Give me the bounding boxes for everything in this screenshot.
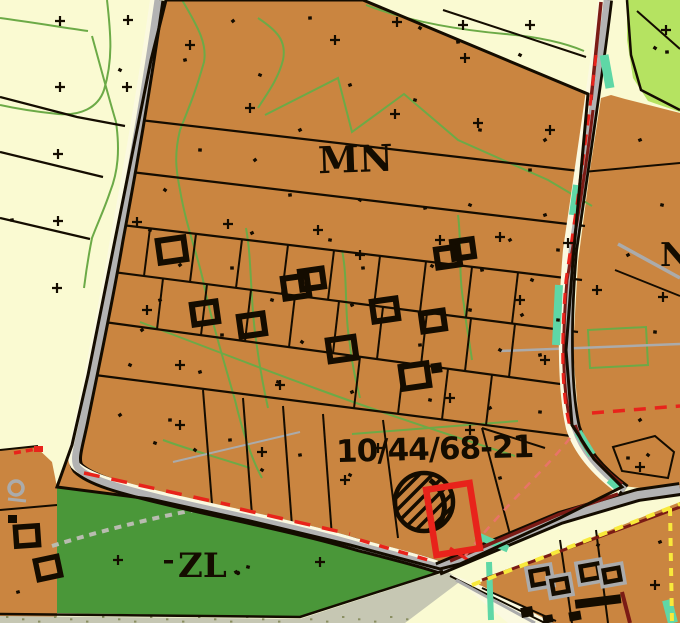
plot-number-label: 10/44/68-21 xyxy=(336,429,534,470)
zone-label-mn: MN xyxy=(317,136,393,183)
zoning-map-svg[interactable]: MN ZL 10/44/68-21 N xyxy=(0,0,680,623)
edge-partial-zone-label: N xyxy=(660,235,680,274)
zone-label-zl: ZL xyxy=(178,546,227,586)
southwest-strip-zone xyxy=(0,446,57,623)
zoning-map-canvas[interactable]: MN ZL 10/44/68-21 N xyxy=(0,0,680,623)
